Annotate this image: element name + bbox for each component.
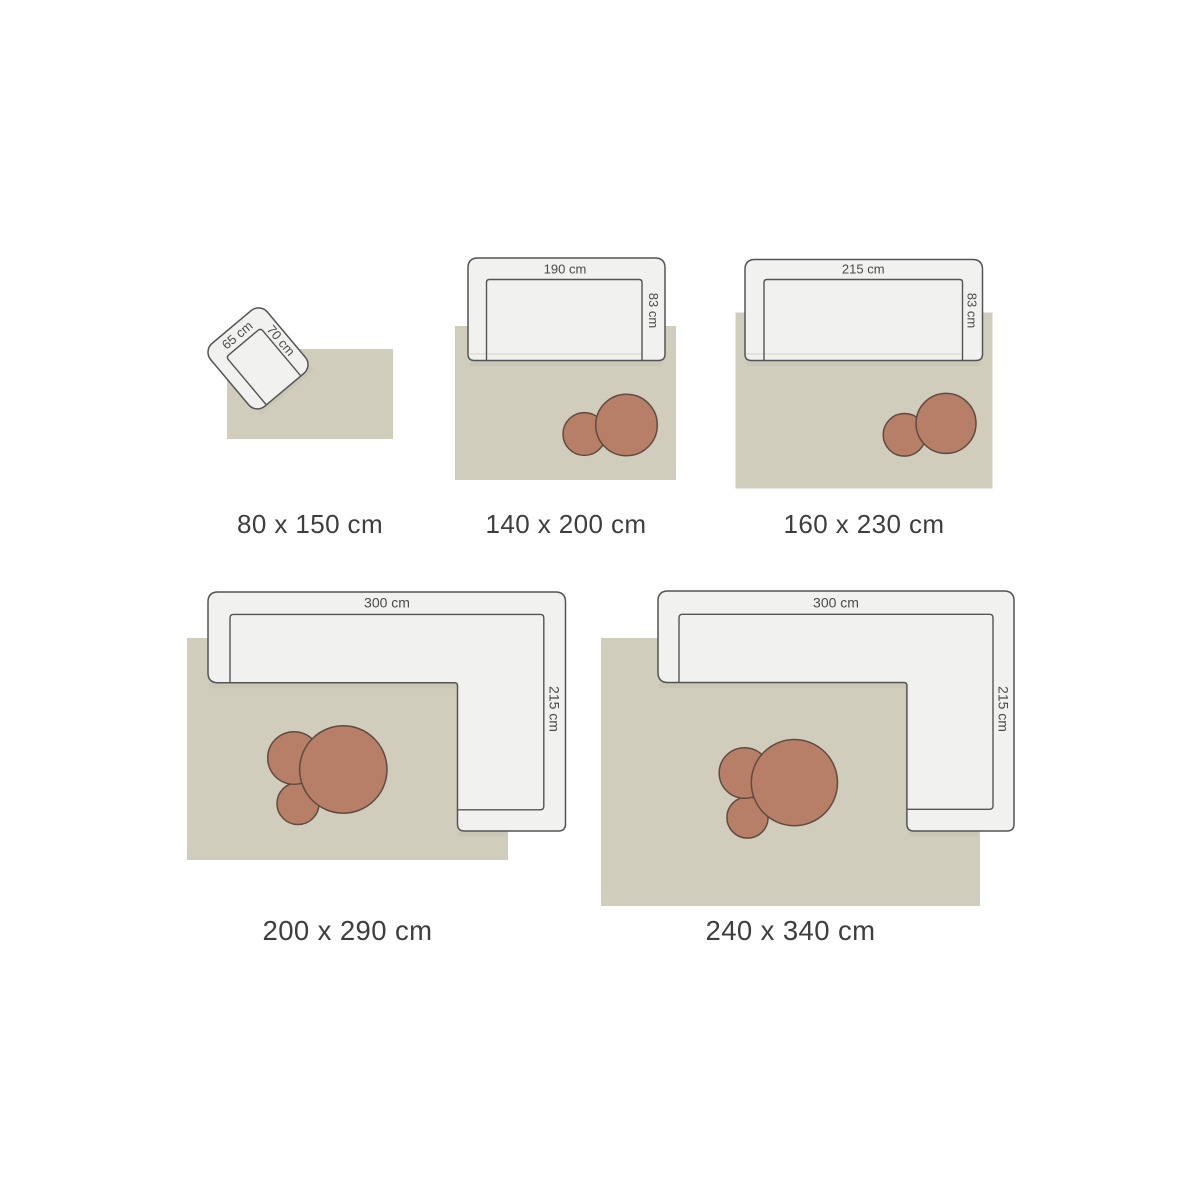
svg-text:190 cm: 190 cm xyxy=(544,262,587,277)
svg-text:200 x 290 cm: 200 x 290 cm xyxy=(263,915,433,946)
svg-text:300 cm: 300 cm xyxy=(364,595,410,611)
svg-text:215 cm: 215 cm xyxy=(547,686,563,732)
svg-text:83 cm: 83 cm xyxy=(964,293,979,328)
svg-text:80 x 150 cm: 80 x 150 cm xyxy=(237,509,383,539)
svg-text:300 cm: 300 cm xyxy=(813,595,859,611)
svg-text:160 x 230 cm: 160 x 230 cm xyxy=(784,509,945,539)
svg-text:215 cm: 215 cm xyxy=(842,262,885,277)
svg-text:215 cm: 215 cm xyxy=(995,686,1011,732)
svg-text:83 cm: 83 cm xyxy=(646,293,661,328)
svg-text:240 x 340 cm: 240 x 340 cm xyxy=(706,915,876,946)
svg-text:140 x 200 cm: 140 x 200 cm xyxy=(486,509,647,539)
